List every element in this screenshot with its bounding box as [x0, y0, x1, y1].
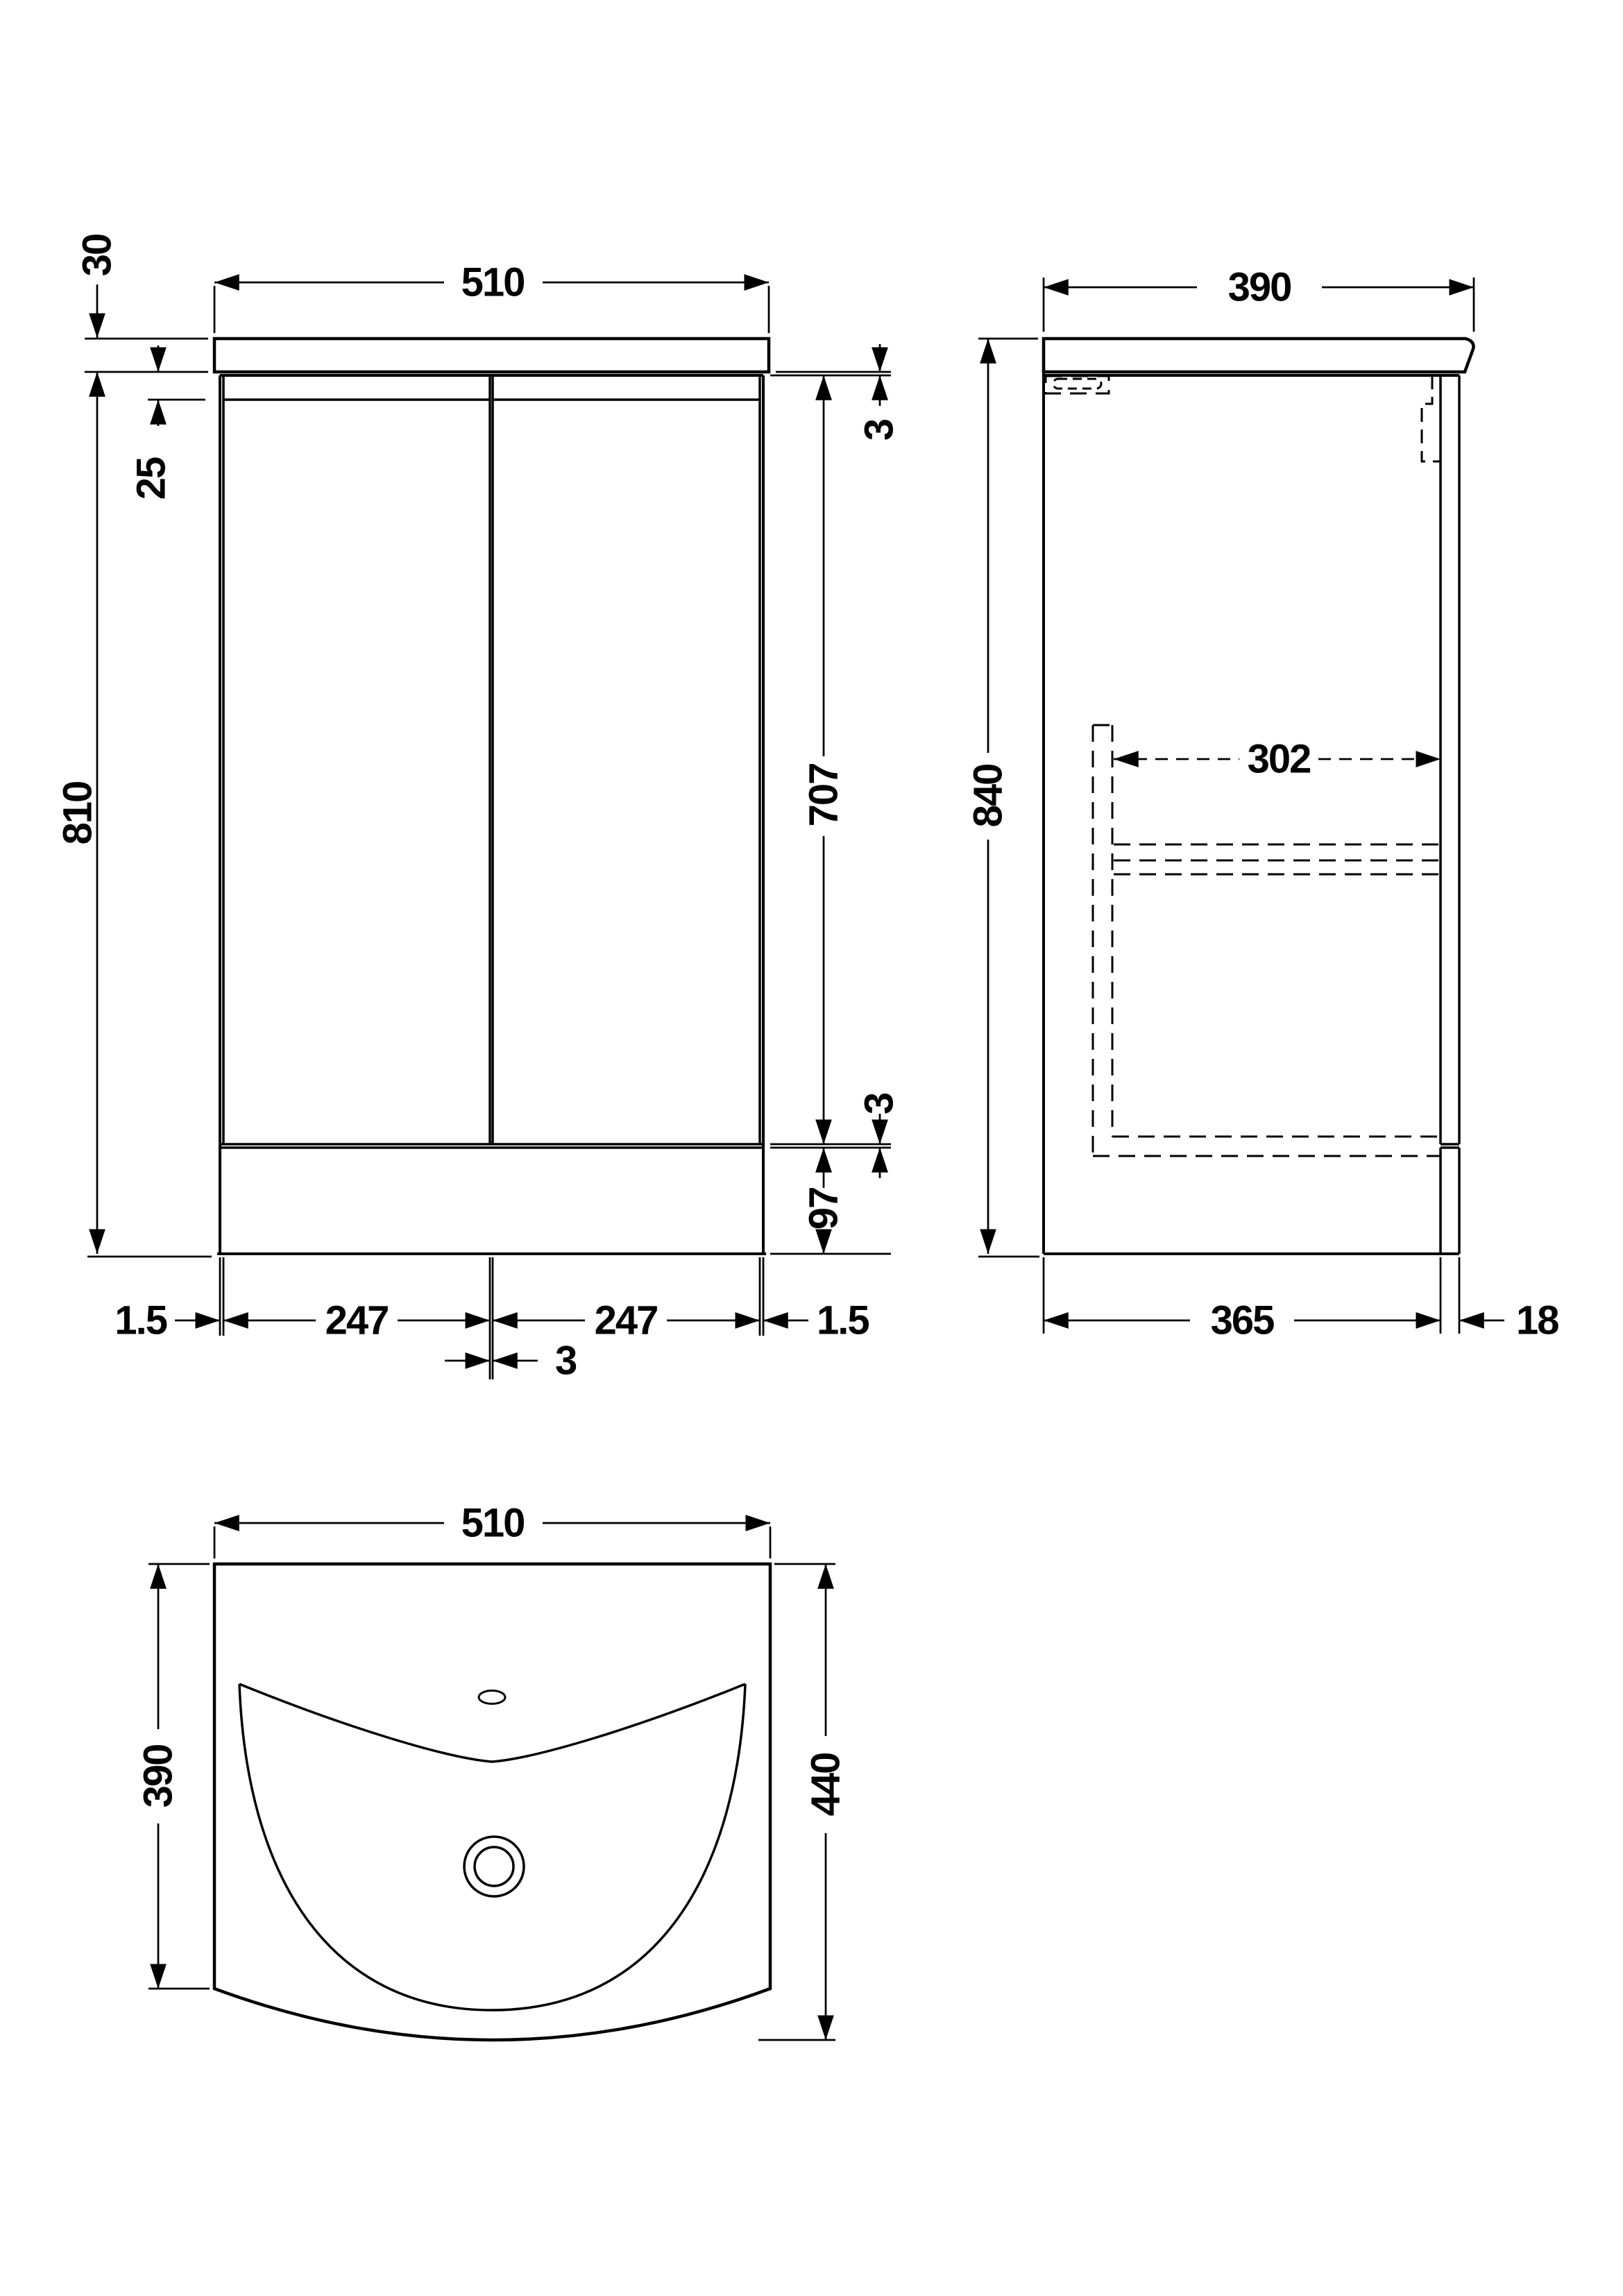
tap-hole [479, 1691, 505, 1704]
dim-side-carcass-depth: 365 [1211, 1298, 1275, 1343]
dim-front-side-reveal-left: 1.5 [114, 1298, 167, 1343]
side-door-profile [1441, 375, 1459, 1144]
hidden-bracket [1422, 375, 1441, 461]
waste-outer-ring [464, 1837, 524, 1896]
dim-front-cabinet-height: 810 [56, 782, 101, 845]
dim-front-door-height: 707 [801, 764, 847, 827]
side-view [1044, 339, 1474, 1254]
dim-side-counter-depth: 390 [1228, 265, 1291, 310]
dim-front-plinth-height: 97 [801, 1188, 847, 1230]
dim-front-door-right-width: 247 [595, 1298, 658, 1343]
front-dimensions [85, 282, 891, 1379]
side-carcass-outline [1044, 372, 1459, 1254]
dim-front-counter-thickness: 30 [75, 235, 120, 277]
plan-view [214, 1564, 770, 2040]
dim-front-side-reveal-right: 1.5 [817, 1298, 869, 1343]
side-dimensions [978, 278, 1504, 1334]
plan-basin-back-edge [239, 1684, 745, 1762]
front-doors [220, 375, 763, 1148]
dim-side-door-thickness: 18 [1516, 1298, 1558, 1343]
dim-plan-basin-depth: 390 [136, 1745, 181, 1808]
dim-front-door-plinth-gap: 3 [857, 1093, 902, 1114]
front-view [214, 339, 769, 1254]
dim-side-total-height: 840 [966, 765, 1011, 828]
dim-front-top-reveal: 25 [129, 457, 174, 500]
dim-front-door-left-width: 247 [325, 1298, 389, 1343]
dim-front-counter-door-gap: 3 [857, 419, 902, 441]
dimension-labels: 510 30 25 810 3 707 3 97 1.5 247 247 1.5… [56, 235, 1559, 1817]
wall-fixing-slot [1053, 379, 1101, 389]
drawing-page: 510 30 25 810 3 707 3 97 1.5 247 247 1.5… [0, 0, 1623, 2296]
plan-counter-outline [214, 1564, 770, 2040]
dim-plan-basin-total-depth: 440 [804, 1753, 849, 1817]
front-countertop [214, 339, 769, 372]
side-countertop-profile [1044, 339, 1474, 372]
side-plinth-profile [1441, 1148, 1459, 1254]
vanity-technical-drawing: 510 30 25 810 3 707 3 97 1.5 247 247 1.5… [0, 0, 1623, 2296]
side-hidden-lines [1046, 375, 1441, 1156]
dim-side-internal-depth: 302 [1248, 737, 1311, 782]
dim-plan-basin-width: 510 [461, 1501, 525, 1546]
dim-front-center-door-gap: 3 [555, 1338, 577, 1384]
waste-inner-ring [475, 1847, 513, 1886]
dim-front-counter-width: 510 [461, 260, 525, 305]
